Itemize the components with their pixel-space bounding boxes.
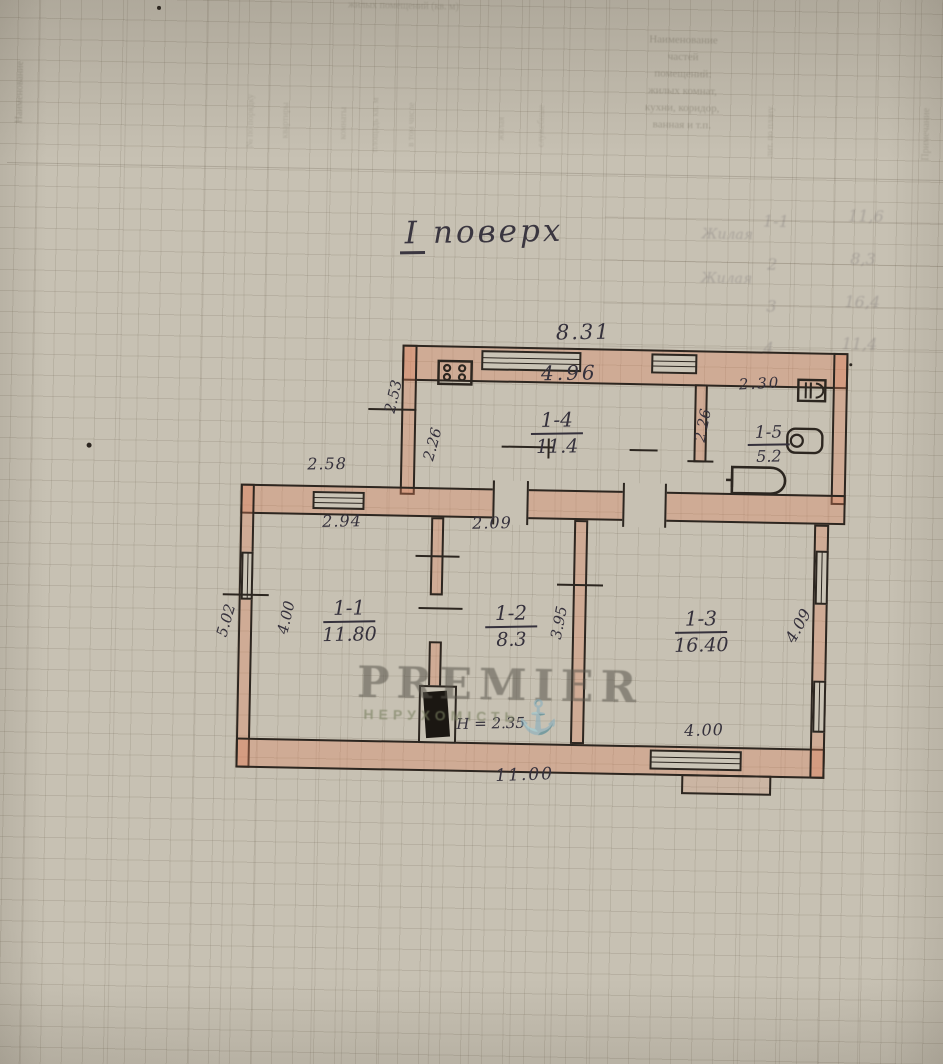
form-column-label: Примечание [920,108,932,161]
doorway-kitchen-to-room3 [622,483,667,528]
faint-handwriting: 3 [766,297,777,316]
form-column-label: лит. по плану [764,106,775,157]
form-column-label: Наименование [14,61,26,124]
wall-left [235,484,254,768]
dim-room3-width: 4.00 [684,720,724,740]
form-column-label: жилая [496,117,506,141]
faint-handwriting: 11,6 [848,206,884,226]
wall-upper-left [400,345,418,495]
ledger-header-rule [7,162,943,181]
window-middle-wall [312,491,364,510]
faint-handwriting: 8,3 [850,249,876,268]
faint-handwriting: 2 [767,255,778,274]
dim-room1-width: 2.94 [322,511,362,531]
ink-speck [87,443,92,448]
room-label-1-4: 1-4 11.4 [502,407,613,459]
floor-title: Іповерх [399,213,563,255]
dim-tick [416,555,460,558]
dim-room3-depth: 4.09 [781,606,815,646]
ledger-column-line [19,0,42,1064]
gas-stove-icon [437,359,473,386]
form-column-label: в том числе [405,102,416,147]
floor-title-roman-numeral: І [399,215,425,254]
watermark-subtitle: НЕРУХОМІСТЬ [363,706,519,725]
ink-speck [157,6,161,10]
dim-left-side: 5.02 [213,602,240,639]
dim-tick [557,584,603,587]
porch-step [681,774,771,796]
ledger-column-line [778,0,801,1064]
room-label-1-5: 1-5 5.2 [713,422,824,467]
form-header-name-column: Наименование частей помещений: жилых ком… [608,31,758,136]
dim-room2-width: 2.09 [472,513,512,533]
ledger-column-line [377,0,400,1064]
ledger-column-line [894,0,917,1064]
dim-kitchen-width: 4.96 [541,360,598,385]
window-right-wall-upper [815,551,829,605]
window-top-small [651,353,697,374]
ledger-column-line [588,0,611,1064]
dim-top-total: 8.31 [556,320,611,345]
room-number: 1-2 [485,600,538,628]
room-number: 1-4 [530,407,583,435]
ledger-column-line [218,0,241,1064]
ledger-column-line [106,0,129,1064]
room-number: 1-3 [675,606,728,634]
form-column-label: площадь кв. м [369,97,380,152]
dim-bath-width: 2.30 [738,373,780,393]
dim-tick [223,593,269,596]
form-column-label: № по порядку [244,94,255,148]
scanned-floor-plan-page: жилых помещений (кв. м) Наименование час… [0,0,943,1064]
window-left-wall [241,552,254,600]
room-area: 11.4 [502,435,612,459]
dim-tick [687,460,713,462]
faint-handwriting: 11,4 [842,334,878,354]
form-column-label: квартиры [280,102,291,138]
faint-handwriting: Жилая [702,226,754,243]
ledger-column-line [856,0,879,1064]
dim-kitchen-depth-left: 2.26 [419,426,445,463]
room-label-1-3: 1-3 16.40 [646,606,757,658]
anchor-icon: ⚓ [517,697,559,738]
water-heater-icon [797,378,827,403]
ledger-column-line [309,0,332,1064]
window-right-wall-lower [812,681,826,733]
wall-upper-right [831,353,849,505]
room-number: 1-5 [748,422,790,446]
ledger-column-line [549,0,572,1064]
form-header-note: жилых помещений (кв. м) [348,0,459,13]
room-area: 16.40 [646,634,756,658]
dim-tick [630,449,658,452]
ledger-column-line [187,0,210,1064]
ledger-column-line [736,0,759,1064]
form-column-label: комнаты [338,107,349,140]
floor-title-word: поверх [433,213,564,251]
room-label-1-1: 1-1 11.80 [294,595,405,647]
room-area: 5.2 [714,446,824,467]
dim-left-top-offset: 2.58 [307,454,347,474]
faint-handwriting: Жилая [701,270,753,287]
bathtub-icon [724,465,795,496]
room-number: 1-1 [323,595,376,623]
watermark-brand: PREMIER [357,658,644,713]
faint-handwriting: 16,4 [844,292,880,312]
window-bottom-wall [649,749,741,771]
ledger-column-line [340,0,363,1064]
form-header-line: ванная и т.п. [608,116,756,136]
graph-paper: жилых помещений (кв. м) Наименование час… [0,0,943,1064]
room-area: 11.80 [294,623,404,647]
faint-handwriting: 1-1 [763,212,789,231]
ink-speck [849,363,852,366]
form-column-label: служебные [535,105,546,148]
dim-bottom-total: 11.00 [495,764,554,786]
